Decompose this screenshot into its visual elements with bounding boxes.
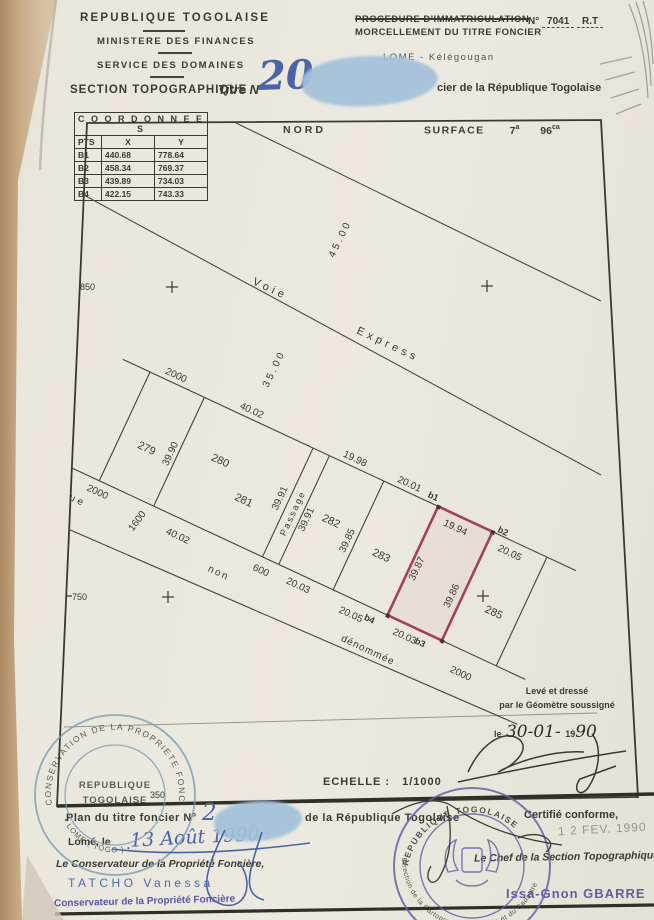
- passage-right-edge: [279, 456, 330, 565]
- street-label-rue: Rue: [58, 488, 87, 510]
- surface-centiares: 96: [540, 125, 552, 137]
- conservateur-name: TATCHO Vanessa: [68, 876, 214, 890]
- dim-label: 39.85: [337, 527, 358, 555]
- grid-label-850: 850: [80, 282, 95, 292]
- dim-label: 20.05: [337, 605, 365, 626]
- parcel-number-283: 283: [370, 547, 392, 566]
- underline: [143, 30, 185, 32]
- survey-date-handwritten2: 90: [575, 722, 597, 742]
- red-parcel-boundary: [387, 506, 492, 640]
- scale-label: ECHELLE :: [323, 776, 390, 788]
- footer-plan-label: Plan du titre foncier N°: [66, 812, 197, 824]
- north-label: NORD: [283, 124, 326, 136]
- dim-45: 45.00: [327, 219, 354, 260]
- titre-label: Titre N°: [218, 82, 264, 97]
- dim-label: 600: [251, 562, 271, 579]
- scanned-document-photo: Voie Express 45.00 35.00: [0, 0, 654, 920]
- surface-label: SURFACE: [424, 125, 485, 137]
- underline: [150, 76, 184, 78]
- dim-label: 19.98: [341, 449, 369, 470]
- surface-ares-unit: a: [515, 124, 519, 131]
- passage-left-edge: [262, 448, 313, 557]
- road-label-express: Express: [355, 325, 421, 365]
- point-label-b2: b2: [496, 524, 510, 538]
- surface-line: SURFACE 7a 96ca: [424, 124, 560, 137]
- header-procedure-struck: PROCEDURE D'IMMATRICULATION: [355, 14, 529, 25]
- parcel-number-280: 280: [209, 452, 231, 471]
- point-label-b4: b4: [363, 612, 377, 626]
- date-le: le: [494, 729, 502, 739]
- point-label-b1: b1: [426, 490, 440, 504]
- conservateur-title: Le Conservateur de la Propriété Foncière…: [56, 858, 264, 870]
- num-value: 7041: [542, 16, 574, 28]
- parcel-divider: [333, 481, 384, 590]
- parcel-divider: [99, 372, 150, 481]
- header-morcellement: MORCELLEMENT DU TITRE FONCIER: [355, 27, 542, 38]
- dim-label: 20.05: [496, 543, 524, 564]
- dim-label: 40.02: [164, 526, 192, 547]
- dim-label: 2000: [85, 483, 110, 503]
- dim-label: 20.01: [396, 474, 424, 495]
- scale-line: ECHELLE : 1/1000: [323, 776, 442, 788]
- dim-label: 1600: [127, 509, 149, 534]
- parcel-number-279: 279: [136, 439, 158, 458]
- dim-label: 2000: [448, 664, 473, 684]
- survey-date-handwritten: 30-01-: [506, 722, 561, 742]
- street-label-non: non: [206, 564, 231, 584]
- title-number-line: N° 7041 R.T: [528, 16, 603, 27]
- dim-label: 39.91: [270, 484, 291, 512]
- parcel-number-281: 281: [233, 491, 255, 510]
- dim-35: 35.00: [261, 349, 288, 390]
- survey-note-line1: Levé et dressé: [497, 686, 617, 696]
- road-label-voie: Voie: [251, 276, 290, 303]
- date-print-19: 19: [565, 729, 575, 739]
- footer-plan-rest: de la République Togolaise: [305, 812, 460, 824]
- titre-rest: cier de la République Togolaise: [437, 82, 601, 94]
- underline: [158, 52, 192, 54]
- parcel-divider: [154, 397, 205, 506]
- parcel-number-282: 282: [320, 512, 342, 531]
- voie-express-upper-edge: [236, 123, 601, 301]
- survey-date-line: le 30-01- 1990: [494, 722, 597, 742]
- surface-centiares-unit: ca: [552, 124, 560, 131]
- header-country: REPUBLIQUE TOGOLAISE: [80, 12, 270, 24]
- parcel-number-285: 285: [483, 603, 505, 622]
- footer-certifie: Certifié conforme,: [524, 809, 618, 821]
- dim-label: 20.03: [284, 576, 312, 597]
- num-label: N°: [528, 16, 539, 27]
- grid-label-350: 350: [150, 790, 165, 800]
- header-service: SERVICE DES DOMAINES: [97, 60, 245, 71]
- scale-value: 1/1000: [402, 776, 442, 788]
- num-suffix: R.T: [577, 16, 603, 28]
- footer-lome-le: Lomé, le: [68, 836, 111, 848]
- survey-note-line2: par le Géomètre soussigné: [487, 700, 627, 710]
- grid-label-750: 750: [72, 592, 87, 602]
- bottom-divider-line: [57, 794, 654, 806]
- dim-label: 2000: [164, 366, 189, 386]
- chef-name: Issa-Gnon GBARRE: [506, 886, 646, 901]
- header-ministry: MINISTERE DES FINANCES: [97, 36, 255, 47]
- dim-label: 40.02: [238, 401, 266, 422]
